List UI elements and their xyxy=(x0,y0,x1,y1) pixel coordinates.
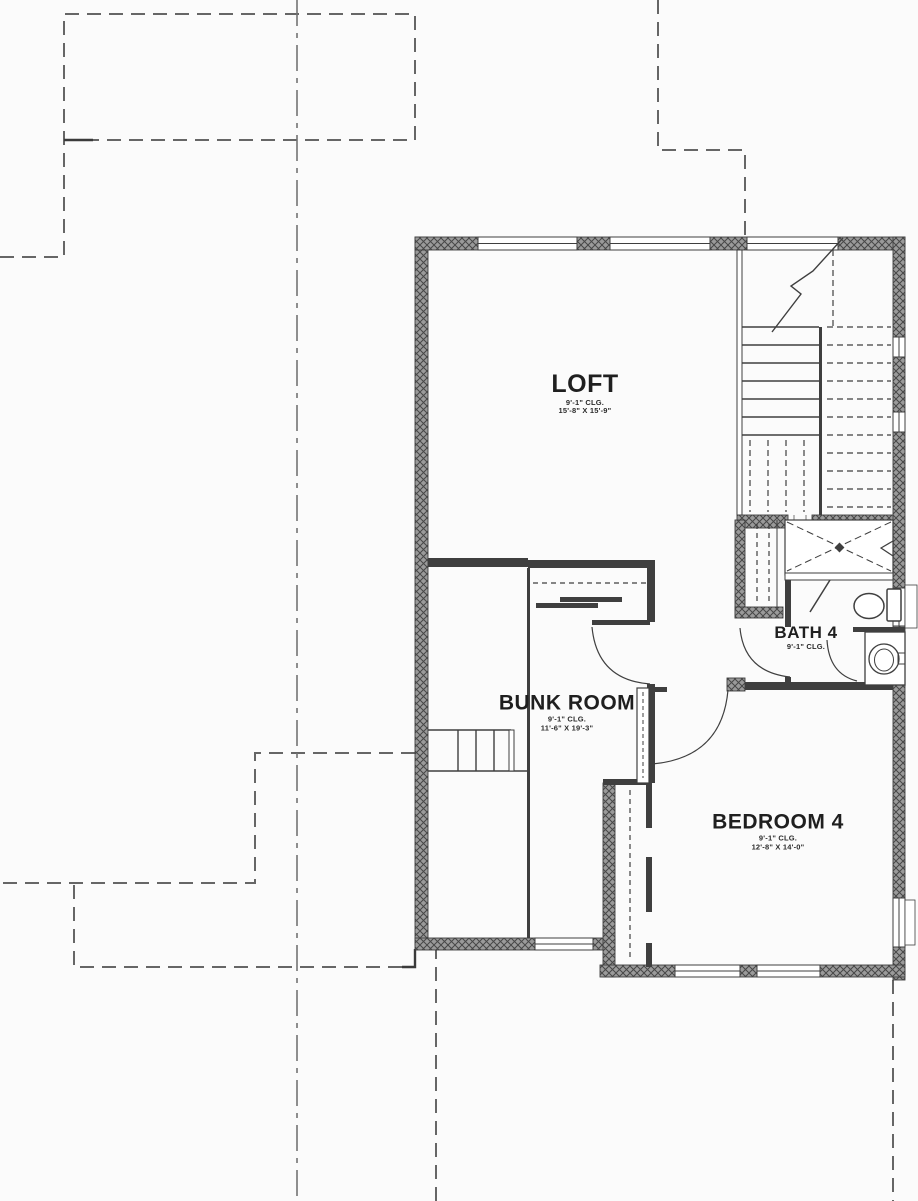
room-name: LOFT xyxy=(551,370,618,399)
shower xyxy=(785,520,893,580)
room-size: 12'-8" X 14'-0" xyxy=(712,843,844,852)
room-label-bath-4: BATH 4 9'-1" CLG. xyxy=(774,623,837,651)
doors xyxy=(592,580,857,764)
floor-plan-drawing xyxy=(0,0,918,1201)
room-ceiling: 9'-1" CLG. xyxy=(774,642,837,651)
room-name: BUNK ROOM xyxy=(499,691,635,715)
bunk-room-steps xyxy=(428,730,528,771)
room-name: BEDROOM 4 xyxy=(712,810,844,834)
toilet xyxy=(854,589,901,621)
room-label-loft: LOFT 9'-1" CLG. 15'-8" X 15'-9" xyxy=(551,370,618,416)
room-size: 15'-8" X 15'-9" xyxy=(551,407,618,416)
room-name: BATH 4 xyxy=(774,623,837,643)
room-label-bedroom-4: BEDROOM 4 9'-1" CLG. 12'-8" X 14'-0" xyxy=(712,810,844,851)
stair-break-line xyxy=(772,238,843,332)
room-size: 11'-6" X 19'-3" xyxy=(499,724,635,733)
staircase xyxy=(737,238,891,528)
outline-solid-accents xyxy=(64,140,415,967)
exterior-walls xyxy=(415,237,905,980)
room-label-bunk-room: BUNK ROOM 9'-1" CLG. 11'-6" X 19'-3" xyxy=(499,691,635,732)
floor-plan-page: LOFT 9'-1" CLG. 15'-8" X 15'-9" BUNK ROO… xyxy=(0,0,918,1201)
sink-vanity xyxy=(865,632,905,685)
lower-floor-outline-dashed xyxy=(0,0,893,1201)
